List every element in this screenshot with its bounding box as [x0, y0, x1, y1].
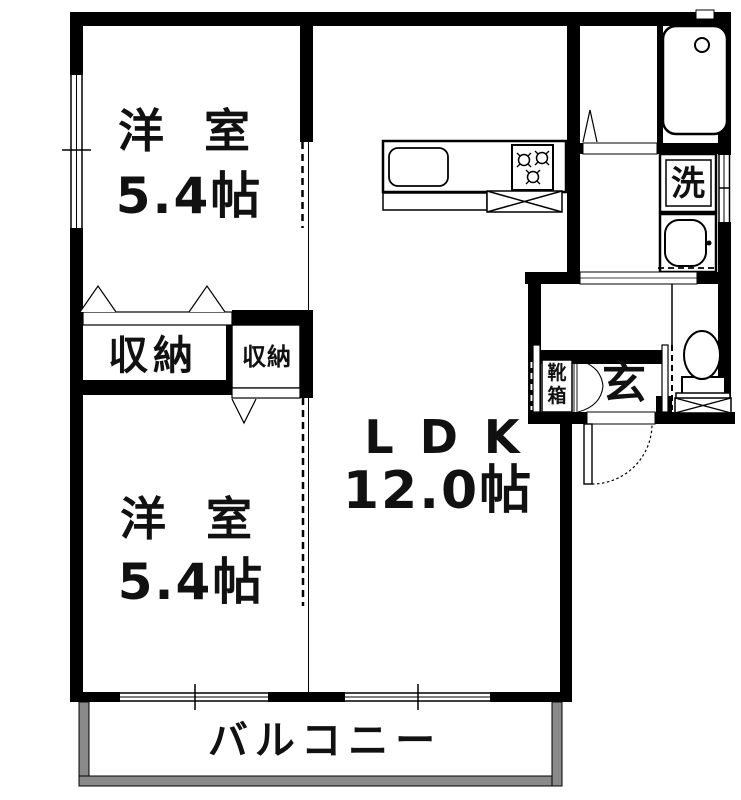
- washroom-window: [718, 155, 731, 222]
- balcony-window-left: [120, 684, 268, 710]
- bathroom-vent-window: [696, 10, 714, 19]
- sliding-door-bedroom1: [303, 142, 309, 312]
- bathtub-icon: [663, 26, 727, 134]
- closet-small: [232, 325, 300, 423]
- door-swing-icon: [583, 110, 597, 142]
- kitchen-lower-counter: [383, 191, 562, 212]
- closet-large-label: 収納: [108, 336, 198, 376]
- shoe-cabinet-doors-icon: [574, 360, 603, 412]
- bedroom-bottom-label: 洋 室: [120, 496, 264, 542]
- bedroom-top-label: 洋 室: [118, 108, 262, 154]
- entry-door-swing-icon: [592, 424, 652, 484]
- bathroom-door: [583, 110, 657, 154]
- bedroom-bottom-size: 5.4帖: [118, 557, 265, 607]
- closet-large: [80, 286, 232, 325]
- ldk-label: LDK: [338, 414, 545, 460]
- balcony-label: バルコニー: [208, 721, 442, 761]
- gas-stove-icon: [512, 145, 553, 190]
- sliding-door-bedroom2: [303, 398, 309, 692]
- ldk-size: 12.0帖: [343, 465, 533, 517]
- entrance-label: 玄: [602, 362, 646, 406]
- bedroom-top-size: 5.4帖: [116, 171, 263, 221]
- closet-small-label: 収納: [242, 345, 292, 369]
- kitchen-sink-icon: [389, 148, 448, 186]
- entry-door-leaf: [584, 424, 592, 484]
- wash-basin-icon: [660, 214, 716, 272]
- balcony-window-right: [345, 684, 490, 710]
- laundry-label: 洗: [671, 167, 705, 201]
- kitchen-counter: [383, 141, 566, 192]
- entry-door: [584, 412, 655, 484]
- floorplan: 洋 室 5.4帖 洋 室 5.4帖 LDK 12.0帖 収納 収納 靴箱 玄 洗…: [0, 0, 741, 800]
- shoe-cabinet-label: 靴箱: [547, 362, 568, 408]
- left-window: [62, 75, 91, 228]
